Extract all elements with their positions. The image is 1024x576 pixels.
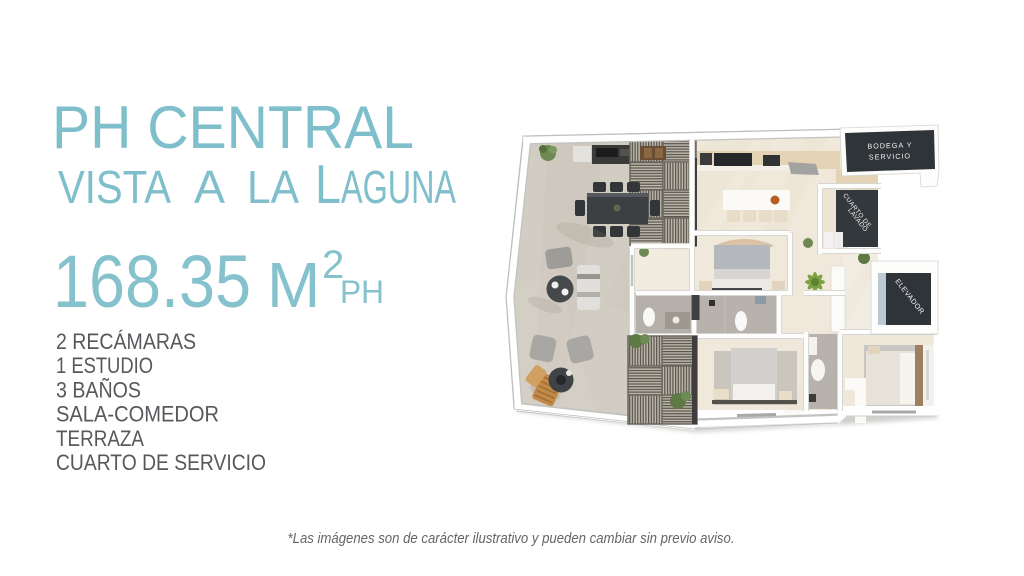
svg-text:A: A <box>194 161 225 213</box>
svg-text:PH CENTRAL: PH CENTRAL <box>52 94 414 161</box>
svg-text:BODEGA Y: BODEGA Y <box>867 140 912 150</box>
svg-text:3 BAÑOS: 3 BAÑOS <box>56 377 141 402</box>
svg-text:SERVICIO: SERVICIO <box>869 151 911 161</box>
svg-text:AGUNA: AGUNA <box>341 161 456 213</box>
svg-text:SALA-COMEDOR: SALA-COMEDOR <box>56 402 219 427</box>
svg-text:M: M <box>267 249 320 321</box>
svg-text:1 ESTUDIO: 1 ESTUDIO <box>56 353 153 378</box>
svg-text:LA: LA <box>247 161 299 213</box>
svg-text:VISTA: VISTA <box>58 161 171 213</box>
svg-text:L: L <box>315 153 341 215</box>
svg-text:CUARTO DE SERVICIO: CUARTO DE SERVICIO <box>56 450 266 475</box>
svg-text:PH: PH <box>340 274 384 310</box>
svg-text:168.35: 168.35 <box>53 240 251 323</box>
svg-text:TERRAZA: TERRAZA <box>56 426 144 451</box>
svg-text:2 RECÁMARAS: 2 RECÁMARAS <box>56 329 196 354</box>
svg-text:*Las imágenes son de carácter: *Las imágenes son de carácter ilustrativ… <box>288 530 735 547</box>
